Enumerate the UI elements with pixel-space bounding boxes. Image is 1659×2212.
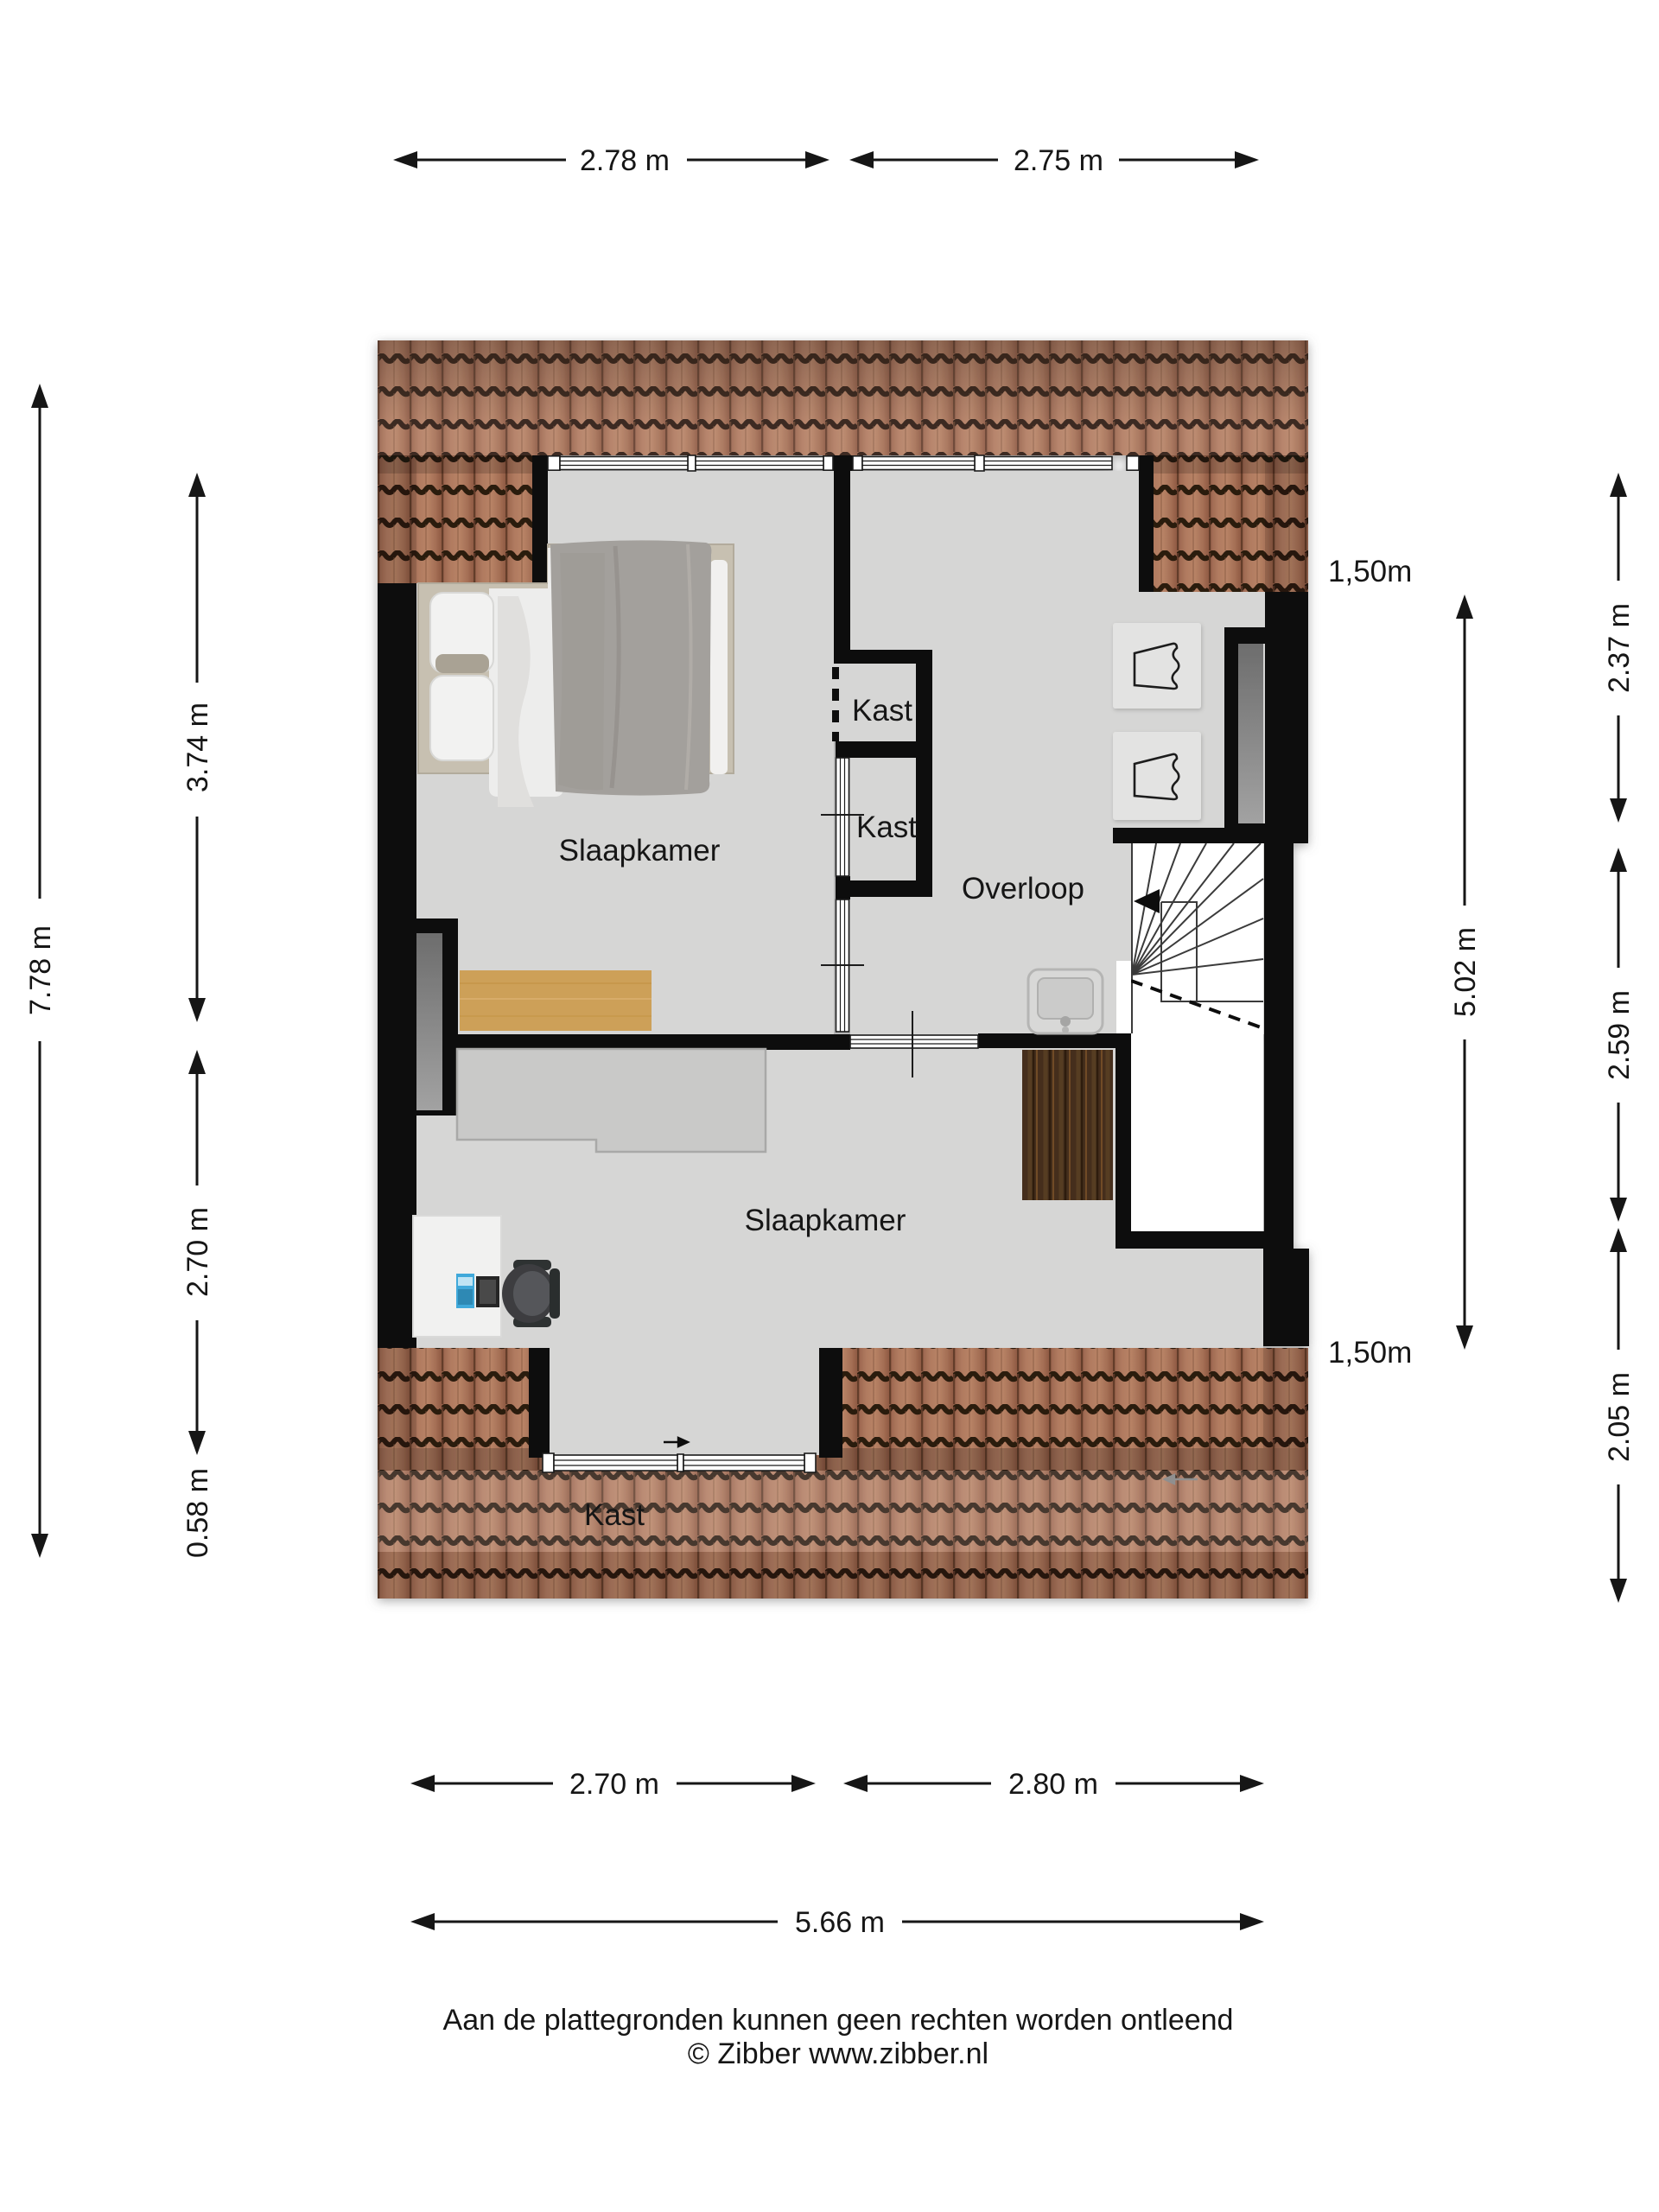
svg-text:5.66 m: 5.66 m — [795, 1906, 885, 1939]
svg-text:2.37 m: 2.37 m — [1603, 603, 1636, 693]
svg-text:2.70 m: 2.70 m — [569, 1768, 659, 1801]
svg-text:5.02 m: 5.02 m — [1449, 927, 1482, 1017]
svg-text:Overloop: Overloop — [962, 872, 1084, 906]
svg-text:2.05 m: 2.05 m — [1603, 1372, 1636, 1462]
svg-text:Slaapkamer: Slaapkamer — [559, 834, 721, 868]
svg-text:2.75 m: 2.75 m — [1014, 144, 1103, 177]
svg-text:1,50m: 1,50m — [1328, 555, 1412, 588]
svg-text:© Zibber www.zibber.nl: © Zibber www.zibber.nl — [688, 2037, 988, 2070]
svg-text:Aan de plattegronden kunnen ge: Aan de plattegronden kunnen geen rechten… — [443, 2004, 1234, 2037]
svg-text:Slaapkamer: Slaapkamer — [745, 1204, 906, 1237]
svg-text:3.74 m: 3.74 m — [181, 702, 214, 792]
svg-text:Kast: Kast — [852, 694, 912, 728]
svg-text:2.78 m: 2.78 m — [580, 144, 670, 177]
svg-text:1,50m: 1,50m — [1328, 1336, 1412, 1370]
svg-text:Kast: Kast — [856, 810, 917, 844]
svg-text:Kast: Kast — [584, 1498, 645, 1532]
svg-text:0.58 m: 0.58 m — [181, 1468, 214, 1558]
svg-text:2.70 m: 2.70 m — [181, 1207, 214, 1297]
svg-text:2.80 m: 2.80 m — [1008, 1768, 1098, 1801]
svg-text:2.59 m: 2.59 m — [1603, 990, 1636, 1080]
svg-text:7.78 m: 7.78 m — [24, 925, 57, 1015]
